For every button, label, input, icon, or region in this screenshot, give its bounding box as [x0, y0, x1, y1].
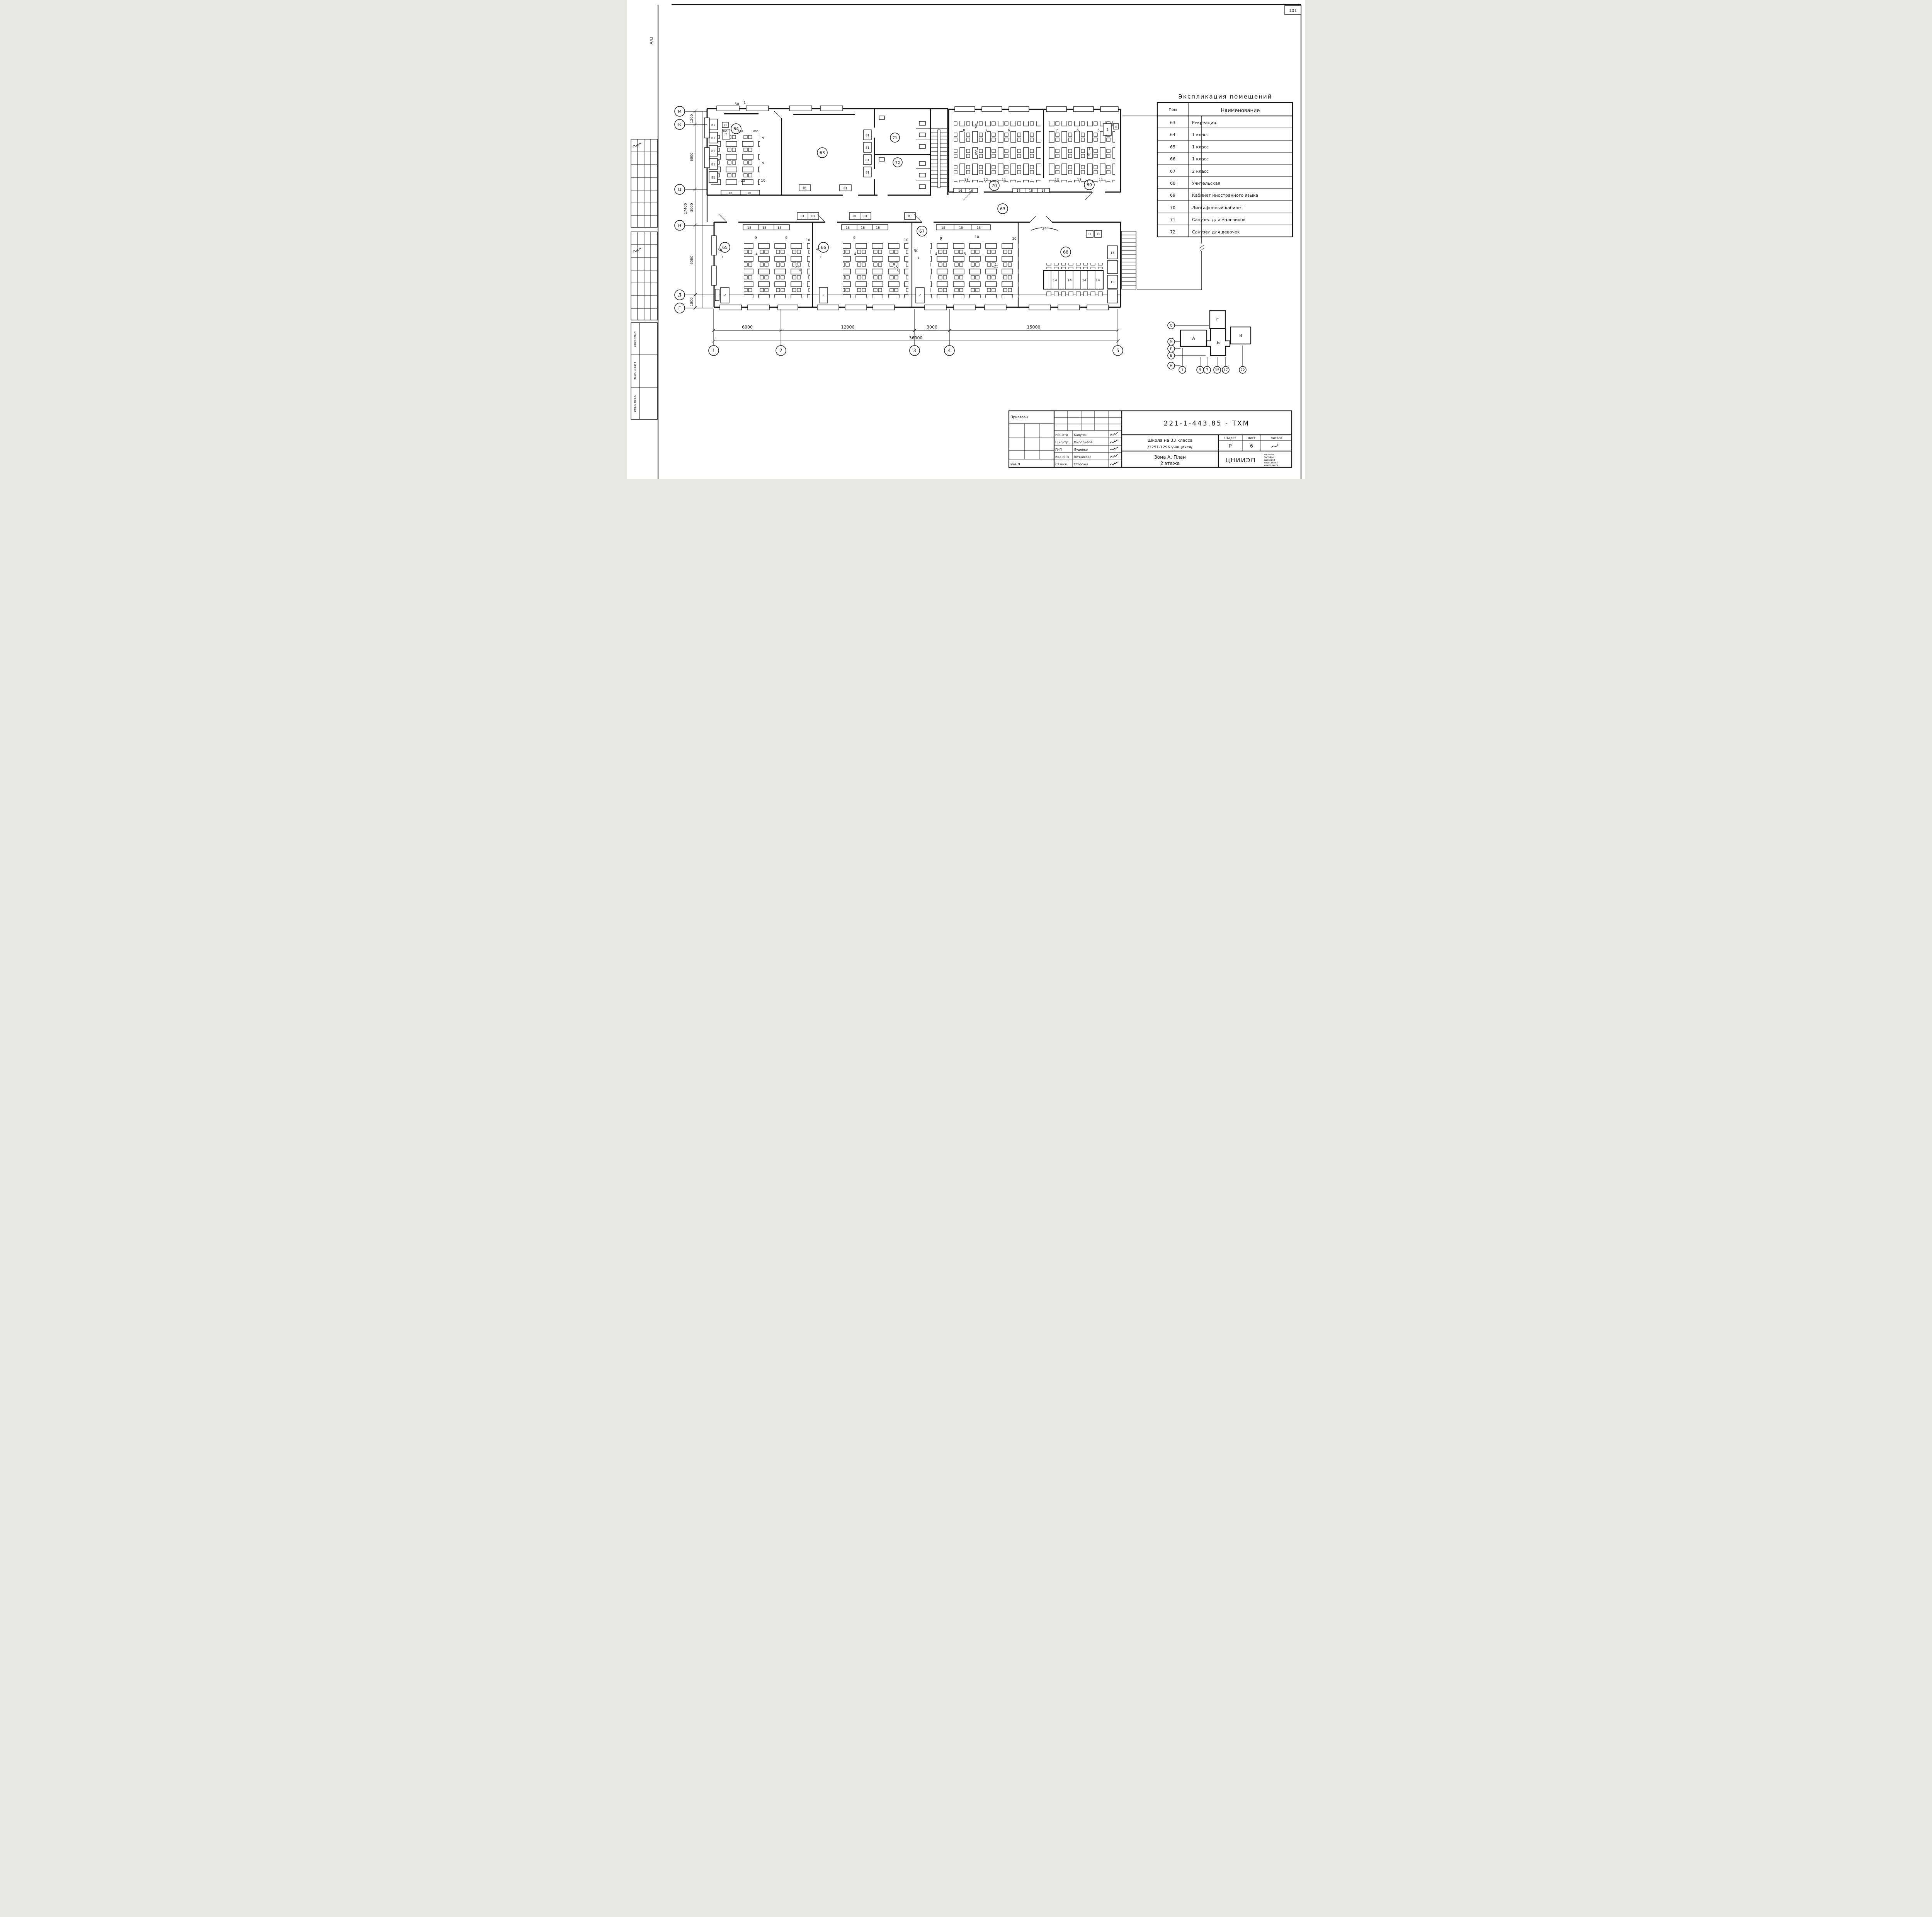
legend-room-no: 70 [1170, 205, 1175, 210]
room-68-label: 68 [1063, 250, 1068, 255]
bench-mark: 81 [866, 134, 869, 137]
drawing-canvas: 101 Ал.I Взам.инв.N Подп. и дата Инв.N п… [627, 0, 1305, 479]
axis-D: Д [678, 293, 682, 298]
door-width-mark: 50 [1087, 153, 1092, 157]
block-V-label: В [1239, 333, 1242, 338]
room-68-furniture [1031, 228, 1117, 303]
legend-row: 64 1 класс [1170, 132, 1209, 137]
dim-15000: 15000 [1027, 325, 1041, 330]
door-leaf-mark: 1 [917, 256, 919, 260]
key-plan: Г Б А В С М Г Б Н 1 5 7 15 1 [1168, 311, 1251, 373]
legend-row: 71 Санузел для мальчиков [1170, 217, 1245, 222]
wardrobe-mark: 2 [725, 133, 727, 136]
count-mark: 9 [762, 162, 764, 165]
keyplan-col-1: 1 [1181, 368, 1184, 372]
table-mark: 14 [1053, 279, 1057, 283]
cabinet-mark: 16 [728, 191, 732, 195]
box-mark: 13 [724, 124, 727, 127]
org-small-1: торгово- [1264, 453, 1274, 456]
axis-N: Н [678, 223, 681, 228]
wardrobe-mark: 2 [724, 293, 726, 297]
legend-table: Экспликация помещений Пом Наименование 6… [1157, 93, 1293, 237]
page-number: 101 [1289, 8, 1297, 13]
bench-mark: 81 [711, 163, 715, 166]
door-leaf-mark: 1 [721, 255, 723, 259]
wardrobe-mark: 2 [919, 293, 921, 297]
cabinet-mark: 18 [762, 226, 766, 230]
cabinet-mark: 18 [777, 226, 781, 230]
legend-col-name: Наименование [1221, 108, 1260, 114]
title-block: Привязан Инв.N Нач.отд Калугин Н.контр М… [1009, 411, 1292, 467]
cabinet-mark: 18 [1017, 189, 1020, 192]
bench-mark: 81 [853, 215, 857, 218]
door-width-mark: 50 [914, 249, 918, 253]
dim-6000b: 6000 [690, 255, 694, 264]
cabinet-mark: 18 [861, 226, 865, 230]
left-stamp-strips: Взам.инв.N Подп. и дата Инв.N подл. [631, 139, 657, 419]
room-66-label: 66 [821, 245, 826, 250]
zone-title-1: Зона А. План [1154, 455, 1186, 460]
legend-room-name: 1 класс [1192, 157, 1209, 162]
keyplan-col-7: 7 [1206, 368, 1208, 372]
count-mark: 25 [893, 266, 898, 269]
legend-room-name: 2 класс [1192, 169, 1209, 174]
cabinet-mark: 18 [846, 226, 850, 230]
desk-area-64 [711, 134, 760, 186]
room-63-label: 63 [820, 150, 825, 155]
desk-mark: 5 [799, 269, 801, 273]
axis-4: 4 [948, 348, 951, 353]
axis-K: К [678, 122, 681, 127]
keyplan-col-5: 5 [1199, 368, 1201, 372]
bench-mark: 81 [908, 215, 912, 218]
desk-mark: 6 [1008, 129, 1010, 133]
legend-room-name: Кабинет иностранного языка [1192, 193, 1258, 198]
legend-room-no: 64 [1170, 132, 1175, 137]
cabinet-mark: 18 [959, 226, 963, 230]
cabinet-mark: 16 [958, 189, 962, 192]
bench-mark: 81 [811, 215, 815, 218]
legend-room-name: 1 класс [1192, 132, 1209, 137]
desk-mark: 7 [985, 129, 988, 133]
wardrobe-mark: 2 [1106, 128, 1108, 131]
dim-6000: 6000 [690, 152, 694, 161]
drawing-code: 221-1-443.85 - ТХМ [1164, 420, 1250, 427]
dim-mark: 600 [738, 130, 743, 133]
legend-room-name: Учительская [1192, 181, 1220, 186]
rack-mark: 24 [1042, 227, 1047, 231]
cabinet-mark: 18 [941, 226, 945, 230]
count-mark: 11 [1099, 178, 1103, 182]
keyplan-col-15: 15 [1215, 368, 1219, 372]
signature [1110, 455, 1118, 458]
axis-5: 5 [1116, 348, 1119, 353]
org-small-5: комплексов [1264, 464, 1279, 467]
count-mark: 25 [994, 265, 998, 269]
table-mark: 14 [1067, 279, 1072, 283]
bench-mark: 81 [711, 176, 715, 179]
staff-row: Вед.инж Печникова [1055, 455, 1118, 459]
count-mark: 9 [785, 236, 787, 240]
wardrobe-mark: 2 [822, 293, 824, 297]
legend-room-no: 66 [1170, 157, 1175, 162]
keyplan-axis-G: Г [1170, 347, 1172, 351]
legend-room-name: Санузел для девочек [1192, 230, 1240, 235]
desk-mark: 4 [755, 252, 758, 256]
desk-mark: 6 [1097, 129, 1100, 133]
legend-room-name: Санузел для мальчиков [1192, 217, 1245, 222]
staff-row: ГИП Луценко [1055, 447, 1118, 451]
axis-2: 2 [779, 348, 782, 353]
bench-mark: 81 [711, 150, 715, 153]
sheet-value: 6 [1250, 443, 1253, 449]
keyplan-axis-S: С [1170, 324, 1172, 328]
staff-role: ГИП [1055, 448, 1062, 451]
cabinet-mark: 18 [1041, 189, 1045, 192]
block-A-label: А [1192, 336, 1195, 341]
staff-role: Вед.инж [1055, 455, 1069, 459]
cabinet-mark: 18 [876, 226, 880, 230]
bench-mark: 81 [711, 123, 715, 127]
cabinet-mark: 18 [1029, 189, 1033, 192]
staff-row: Ст.инж. Сторожа [1055, 462, 1118, 466]
axis-G: Г [679, 306, 681, 311]
stamp-label: Инв.N подл. [633, 395, 636, 412]
room-69-label: 69 [1087, 182, 1092, 187]
project-title-1: Школа на 33 класса [1148, 438, 1193, 443]
dim-36000: 36000 [909, 335, 923, 340]
stage-value: Р [1229, 443, 1231, 449]
dimensions-bottom: 6000 12000 3000 15000 36000 1 2 3 4 5 [709, 309, 1123, 356]
count-mark: 9 [940, 237, 942, 241]
staff-name: Калугин [1074, 433, 1087, 437]
stage-header: Стадия [1225, 436, 1236, 440]
dim-6000: 6000 [742, 325, 753, 330]
dim-1200: 1200 [690, 114, 694, 123]
corridor [707, 195, 915, 222]
dim-12000: 12000 [841, 325, 855, 330]
stamp-label: Подп. и дата [633, 362, 636, 380]
legend-room-no: 68 [1170, 181, 1175, 186]
count-mark: 10 [975, 235, 979, 239]
sheets-header: Листов [1270, 436, 1282, 440]
staff-name: Миролюбов [1074, 441, 1093, 444]
signature [1110, 462, 1118, 465]
legend-room-no: 63 [1170, 120, 1175, 125]
corridor-63-label: 63 [1000, 206, 1005, 211]
org-name: ЦНИИЭП [1225, 457, 1256, 464]
dim-mark: 700 [975, 123, 978, 128]
staff-row: Нач.отд Калугин [1055, 432, 1118, 437]
dim-3000: 3000 [690, 203, 694, 212]
desk-mark: 8 [963, 129, 965, 133]
staff-role: Нач.отд [1055, 433, 1068, 437]
legend-row: 70 Лингафонный кабинет [1170, 205, 1243, 210]
bench-mark: 81 [864, 215, 867, 218]
desk-mark: 4 [854, 252, 856, 256]
bench-mark: 81 [711, 136, 715, 140]
sheet-header: Лист [1248, 436, 1256, 440]
bench-mark: 81 [866, 171, 869, 174]
margin-note: Ал.I [650, 37, 654, 44]
legend-row: 69 Кабинет иностранного языка [1170, 193, 1258, 198]
desk-mark: 7 [1056, 129, 1058, 133]
stamp-label: Взам.инв.N [633, 331, 636, 347]
block-B-label: Б [1217, 340, 1220, 345]
room-67-label: 67 [919, 229, 925, 234]
dim-3000: 3000 [927, 325, 937, 330]
staff-role: Н.контр [1055, 441, 1068, 444]
floor-plan: 64 63 71 72 70 69 63 65 66 67 68 50 1 [704, 101, 1204, 310]
desk-mark: 5 [896, 269, 899, 273]
axis-Ts: Ц [678, 187, 682, 192]
keyplan-axis-N: Н [1170, 364, 1173, 368]
staff-name: Луценко [1074, 448, 1088, 451]
count-mark: 13 [1054, 178, 1059, 182]
legend-room-no: 69 [1170, 193, 1175, 198]
legend-room-name: Рекреация [1192, 120, 1216, 125]
table-mark: 14 [1082, 279, 1087, 283]
block-G-label: Г [1216, 317, 1219, 322]
box-mark: 13 [1114, 126, 1117, 128]
dim-mark: 600 [753, 130, 758, 133]
count-mark: 11 [1002, 178, 1006, 182]
legend-row: 65 1 класс [1170, 145, 1209, 150]
keyplan-axis-M: М [1170, 340, 1173, 344]
sheets-squiggle [1272, 444, 1278, 448]
legend-row: 72 Санузел для девочек [1170, 230, 1240, 235]
attach-label: Привязан [1010, 415, 1028, 419]
legend-title: Экспликация помещений [1178, 93, 1272, 100]
cabinet-mark: 16 [747, 191, 751, 195]
count-mark: 10 [806, 238, 810, 242]
legend-room-name: Лингафонный кабинет [1192, 205, 1243, 210]
dim-17400: 17400 [684, 203, 688, 214]
box-mark: 12 [1088, 233, 1091, 236]
door-width-mark: 50 [718, 249, 722, 252]
dim-mark: 600 [975, 150, 978, 155]
count-mark: 25 [741, 179, 745, 183]
org-small-3: зданий и [1264, 459, 1275, 461]
bench-mark: 81 [866, 158, 869, 162]
legend-room-no: 65 [1170, 145, 1175, 150]
staff-name: Сторожа [1074, 463, 1088, 466]
desk-area-67 [930, 241, 1019, 298]
table-mark: 14 [1095, 279, 1100, 283]
signature-squiggle [633, 249, 641, 252]
legend-row: 66 1 класс [1170, 157, 1209, 162]
count-mark: 9 [762, 136, 764, 140]
count-mark: 12 [983, 178, 988, 182]
count-mark: 25 [795, 266, 799, 269]
desk-area-70 [954, 121, 1041, 182]
room-71-label: 71 [893, 136, 898, 140]
org-small-2: бытовых [1264, 456, 1275, 459]
count-mark: 13 [964, 178, 968, 182]
door-leaf-mark: 1 [1088, 147, 1090, 151]
cabinet-mark: 18 [747, 226, 751, 230]
org-small-4: туристских [1264, 461, 1278, 464]
door-width-mark: 50 [735, 102, 739, 106]
zone-title-2: 2 этажа [1160, 461, 1180, 466]
stair-upper [931, 128, 947, 188]
keyplan-col-22: 22 [1240, 368, 1245, 372]
room-72-label: 72 [895, 161, 900, 165]
legend-room-name: 1 класс [1192, 145, 1209, 150]
count-mark: 10 [1012, 237, 1017, 241]
legend-room-no: 71 [1170, 217, 1175, 222]
legend-row: 63 Рекреация [1170, 120, 1216, 125]
signature [1110, 440, 1118, 443]
door-leaf-mark: 1 [743, 101, 745, 104]
legend-row: 67 2 класс [1170, 169, 1209, 174]
axis-M: М [678, 109, 682, 114]
bench-mark: 81 [801, 215, 804, 218]
legend-col-room: Пом [1168, 108, 1177, 112]
door-leaf-mark: 1 [820, 255, 821, 259]
axis-3: 3 [913, 348, 916, 353]
room-65-label: 65 [722, 245, 728, 250]
staff-row: Н.контр Миролюбов [1055, 440, 1118, 444]
desk-mark: 6 [1077, 129, 1079, 133]
staff-name: Печникова [1074, 455, 1092, 459]
desk-mark: 5 [964, 252, 966, 256]
box-mark: 13 [1097, 233, 1100, 236]
count-mark: 13 [1077, 178, 1081, 182]
bench-mark: 81 [866, 146, 869, 150]
cabinet-mark: 15 [1111, 281, 1114, 284]
bench-mark: 81 [844, 187, 847, 190]
keyplan-col-17: 17 [1223, 368, 1228, 372]
legend-room-no: 67 [1170, 169, 1175, 174]
room-70-label: 70 [992, 183, 997, 188]
legend-row: 68 Учительская [1170, 181, 1220, 186]
signature [1110, 432, 1118, 436]
project-title-2: /1251-1296 учащихся/ [1148, 445, 1192, 449]
stair-lower-right [1122, 231, 1136, 289]
count-mark: 9 [755, 236, 757, 240]
door-width-mark: 50 [816, 249, 821, 252]
axis-1: 1 [712, 348, 715, 353]
signature-squiggle [633, 143, 641, 147]
cabinet-mark: 18 [977, 226, 981, 230]
staff-role: Ст.инж. [1055, 463, 1068, 466]
dim-1800: 1800 [690, 297, 694, 306]
cabinet-mark: 15 [1111, 251, 1114, 255]
count-mark: 9 [853, 236, 855, 240]
drawing-sheet: 101 Ал.I Взам.инв.N Подп. и дата Инв.N п… [627, 0, 1305, 479]
keyplan-axis-B: Б [1170, 354, 1172, 358]
desk-mark: 4 [935, 252, 937, 256]
bench-mark: 81 [803, 187, 807, 190]
count-mark: 10 [761, 179, 765, 183]
cabinet-mark: 16 [969, 189, 973, 192]
signature [1110, 447, 1118, 450]
count-mark: 10 [904, 238, 908, 242]
legend-room-no: 72 [1170, 230, 1175, 235]
inv-label: Инв.N [1010, 463, 1020, 466]
